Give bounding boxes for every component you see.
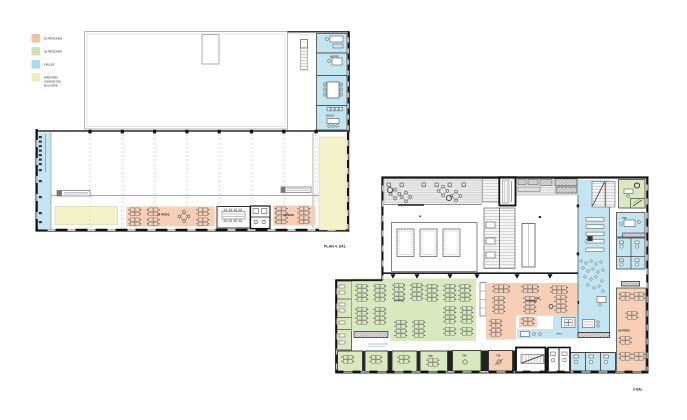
svg-text:24 PERS: 24 PERS [394,300,405,303]
svg-text:MULIGHED: MULIGHED [44,84,58,88]
svg-text:ØKON: ØKON [326,114,334,118]
svg-text:12 PERS.: 12 PERS. [157,212,170,216]
svg-text:PLAN 4. SAL: PLAN 4. SAL [324,245,347,249]
svg-text:UDVIDES DEL: UDVIDES DEL [44,80,62,84]
svg-text:3 SAL: 3 SAL [633,388,643,392]
svg-text:24 PERS: 24 PERS [526,299,537,303]
svg-text:TBB: TBB [462,355,467,358]
svg-text:30 PERSONER: 30 PERSONER [44,49,62,53]
svg-text:FÆLLES: FÆLLES [44,62,55,66]
svg-text:TBB: TBB [496,355,501,358]
svg-text:4-PERS: 4-PERS [283,213,294,217]
svg-text:FREMTIDIG: FREMTIDIG [44,75,58,79]
svg-text:60 PERSONER: 60 PERSONER [44,36,62,40]
svg-text:MØ PRJ: MØ PRJ [330,56,340,59]
svg-text:TBB: TBB [428,355,433,358]
svg-text:PRINT: PRINT [556,334,563,336]
svg-text:TRE: TRE [622,217,627,220]
svg-text:X2 PERS: X2 PERS [618,329,630,333]
